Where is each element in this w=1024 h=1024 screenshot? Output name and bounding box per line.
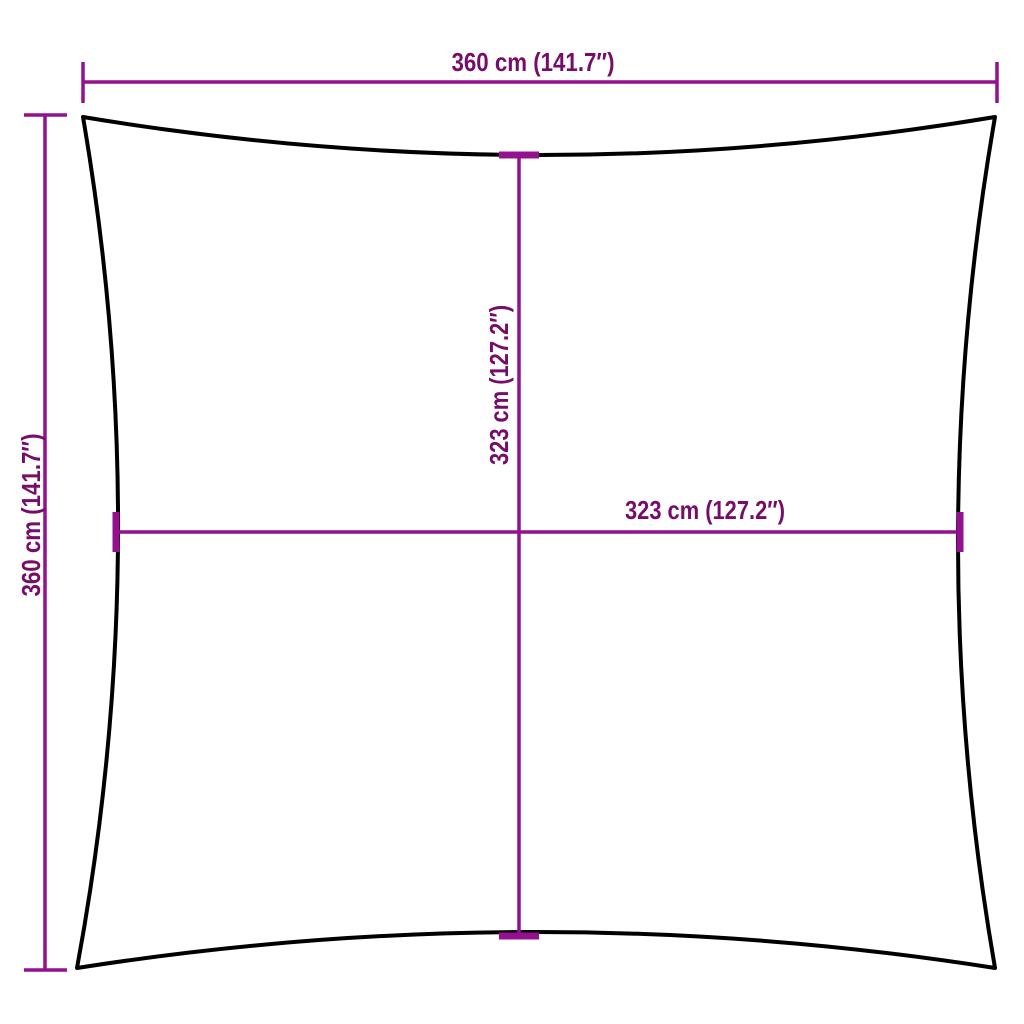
top-width-dimension: 360 cm (141.7″) xyxy=(83,47,997,103)
top-width-label: 360 cm (141.7″) xyxy=(452,47,615,77)
sail-outline xyxy=(77,117,995,968)
left-height-dimension: 360 cm (141.7″) xyxy=(16,115,67,970)
dimension-diagram: 360 cm (141.7″) 360 cm (141.7″) 323 cm (… xyxy=(0,0,1024,1024)
inner-height-label: 323 cm (127.2″) xyxy=(484,305,514,465)
left-height-label: 360 cm (141.7″) xyxy=(16,434,46,597)
diagram-canvas: 360 cm (141.7″) 360 cm (141.7″) 323 cm (… xyxy=(0,0,1024,1024)
inner-width-label: 323 cm (127.2″) xyxy=(625,495,785,525)
